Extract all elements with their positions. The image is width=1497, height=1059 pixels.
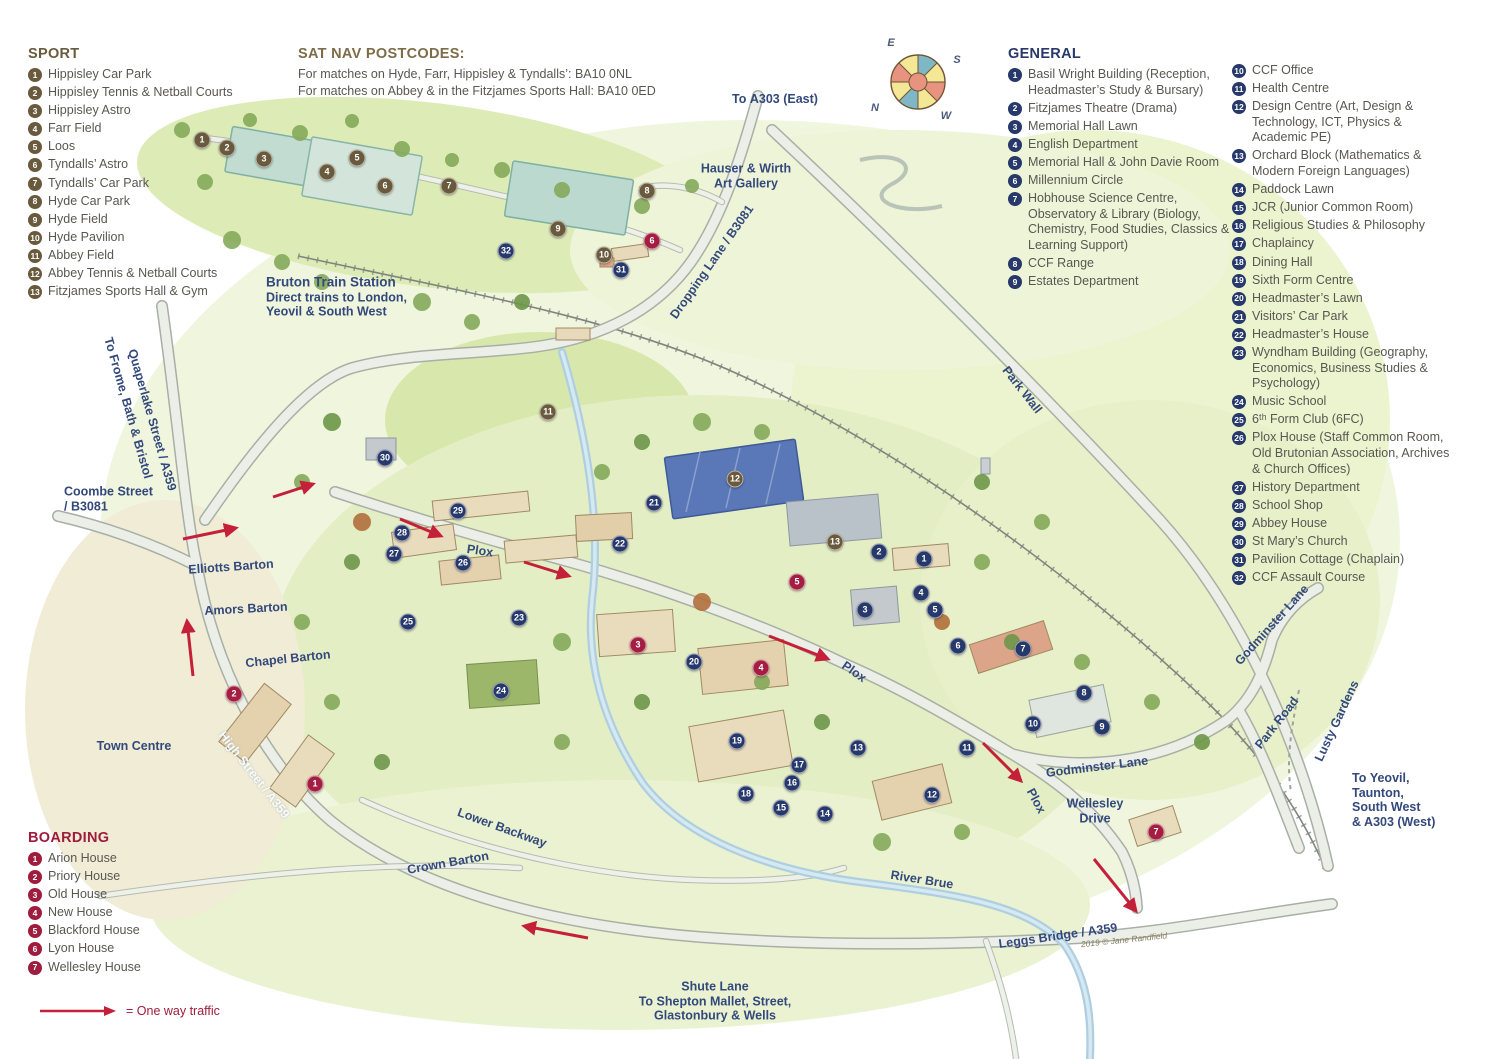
map-marker-general-5: 5: [927, 602, 944, 619]
legend-boarding-item-label: Lyon House: [48, 941, 114, 957]
legend-sport-item-2: 2Hippisley Tennis & Netball Courts: [28, 85, 268, 101]
legend-sport-item-9: 9Hyde Field: [28, 212, 268, 228]
legend-sport-number-badge: 5: [28, 140, 42, 154]
legend-boarding-item-label: New House: [48, 905, 113, 921]
legend-general-number-badge: 7: [1008, 192, 1022, 206]
legend-general-item-label: Pavilion Cottage (Chaplain): [1252, 552, 1404, 568]
legend-general-item-label: Paddock Lawn: [1252, 182, 1334, 198]
legend-sport-item-label: Hyde Pavilion: [48, 230, 124, 246]
legend-general-item-label: Estates Department: [1028, 274, 1138, 290]
map-marker-sport-5: 5: [349, 150, 366, 167]
legend-boarding-title: BOARDING: [28, 830, 228, 846]
legend-sport-item-label: Hyde Field: [48, 212, 108, 228]
map-marker-general-21: 21: [646, 495, 663, 512]
legend-general-number-badge: 5: [1008, 156, 1022, 170]
legend-general-item-25: 256ᵗʰ Form Club (6FC): [1232, 412, 1450, 428]
legend-general-item-5: 5Memorial Hall & John Davie Room: [1008, 155, 1230, 171]
campus-map-page: SPORT 1Hippisley Car Park2Hippisley Tenn…: [0, 0, 1497, 1059]
legend-boarding-item-label: Wellesley House: [48, 960, 141, 976]
map-marker-boarding-2: 2: [226, 686, 243, 703]
legend-sport-item-label: Abbey Field: [48, 248, 114, 264]
map-marker-general-19: 19: [729, 733, 746, 750]
legend-boarding-item-1: 1Arion House: [28, 851, 228, 867]
map-marker-general-4: 4: [913, 585, 930, 602]
map-marker-boarding-7: 7: [1148, 824, 1165, 841]
legend-boarding-number-badge: 1: [28, 852, 42, 866]
legend-sport-items: 1Hippisley Car Park2Hippisley Tennis & N…: [28, 67, 268, 300]
legend-sport-number-badge: 7: [28, 177, 42, 191]
map-marker-sport-7: 7: [441, 178, 458, 195]
legend-general-number-badge: 10: [1232, 64, 1246, 78]
legend-general-number-badge: 21: [1232, 310, 1246, 324]
legend-general-item-20: 20Headmaster’s Lawn: [1232, 291, 1450, 307]
legend-general-number-badge: 16: [1232, 219, 1246, 233]
map-marker-sport-6: 6: [377, 178, 394, 195]
legend-general-item-21: 21Visitors’ Car Park: [1232, 309, 1450, 325]
legend-sport-item-13: 13Fitzjames Sports Hall & Gym: [28, 284, 268, 300]
map-marker-general-8: 8: [1076, 685, 1093, 702]
legend-sport-number-badge: 9: [28, 213, 42, 227]
legend-general-item-label: Headmaster’s House: [1252, 327, 1369, 343]
map-marker-sport-8: 8: [639, 183, 656, 200]
legend-general-item-label: Religious Studies & Philosophy: [1252, 218, 1425, 234]
map-marker-general-15: 15: [773, 800, 790, 817]
legend-general-item-label: Sixth Form Centre: [1252, 273, 1353, 289]
legend-general-item-label: JCR (Junior Common Room): [1252, 200, 1413, 216]
legend-boarding-item-7: 7Wellesley House: [28, 960, 228, 976]
legend-general-item-18: 18Dining Hall: [1232, 255, 1450, 271]
map-marker-general-14: 14: [817, 806, 834, 823]
satnav-line: For matches on Hyde, Farr, Hippisley & T…: [298, 66, 688, 83]
legend-general-number-badge: 1: [1008, 68, 1022, 82]
legend-general-number-badge: 14: [1232, 183, 1246, 197]
legend-general-item-15: 15JCR (Junior Common Room): [1232, 200, 1450, 216]
legend-sport-item-6: 6Tyndalls’ Astro: [28, 157, 268, 173]
satnav-line: For matches on Abbey & in the Fitzjames …: [298, 83, 688, 100]
one-way-arrow: [524, 926, 588, 938]
legend-general-item-label: Design Centre (Art, Design & Technology,…: [1252, 99, 1450, 146]
legend-general-number-badge: 11: [1232, 82, 1246, 96]
legend-sport-item-label: Tyndalls’ Car Park: [48, 176, 149, 192]
legend-sport-item-12: 12Abbey Tennis & Netball Courts: [28, 266, 268, 282]
legend-general-number-badge: 20: [1232, 292, 1246, 306]
legend-sport-number-badge: 4: [28, 122, 42, 136]
legend-general-item-label: Headmaster’s Lawn: [1252, 291, 1363, 307]
legend-general-number-badge: 2: [1008, 102, 1022, 116]
legend-sport-number-badge: 2: [28, 86, 42, 100]
legend-general-item-4: 4English Department: [1008, 137, 1230, 153]
legend-boarding-item-5: 5Blackford House: [28, 923, 228, 939]
map-marker-sport-4: 4: [319, 164, 336, 181]
legend-general-item-label: Basil Wright Building (Reception, Headma…: [1028, 67, 1230, 98]
legend-satnav: SAT NAV POSTCODES: For matches on Hyde, …: [298, 46, 688, 99]
legend-general-number-badge: 25: [1232, 413, 1246, 427]
legend-sport-number-badge: 13: [28, 285, 42, 299]
map-marker-boarding-6: 6: [644, 233, 661, 250]
one-way-arrow: [273, 484, 313, 497]
map-marker-general-12: 12: [924, 787, 941, 804]
legend-general-item-3: 3Memorial Hall Lawn: [1008, 119, 1230, 135]
legend-general-number-badge: 22: [1232, 328, 1246, 342]
map-marker-general-1: 1: [916, 551, 933, 568]
map-marker-general-18: 18: [738, 786, 755, 803]
legend-sport-number-badge: 8: [28, 195, 42, 209]
legend-sport: SPORT 1Hippisley Car Park2Hippisley Tenn…: [28, 46, 268, 302]
legend-general-number-badge: 30: [1232, 535, 1246, 549]
legend-sport-item-8: 8Hyde Car Park: [28, 194, 268, 210]
legend-sport-item-label: Tyndalls’ Astro: [48, 157, 128, 173]
legend-general-item-label: Wyndham Building (Geography, Economics, …: [1252, 345, 1450, 392]
map-marker-general-13: 13: [850, 740, 867, 757]
map-marker-general-27: 27: [386, 546, 403, 563]
legend-general-item-10: 10CCF Office: [1232, 63, 1450, 79]
legend-general-number-badge: 13: [1232, 149, 1246, 163]
map-marker-general-10: 10: [1025, 716, 1042, 733]
legend-sport-item-4: 4Farr Field: [28, 121, 268, 137]
legend-sport-item-label: Abbey Tennis & Netball Courts: [48, 266, 217, 282]
legend-general-number-badge: 32: [1232, 571, 1246, 585]
legend-satnav-title: SAT NAV POSTCODES:: [298, 46, 688, 62]
legend-boarding-item-label: Blackford House: [48, 923, 140, 939]
legend-sport-item-10: 10Hyde Pavilion: [28, 230, 268, 246]
map-marker-general-25: 25: [400, 614, 417, 631]
one-way-arrow: [183, 528, 236, 539]
map-marker-general-26: 26: [455, 555, 472, 572]
legend-sport-item-label: Fitzjames Sports Hall & Gym: [48, 284, 208, 300]
map-marker-general-31: 31: [613, 262, 630, 279]
map-marker-general-30: 30: [377, 450, 394, 467]
legend-general-item-label: Memorial Hall Lawn: [1028, 119, 1138, 135]
legend-general-item-label: Health Centre: [1252, 81, 1329, 97]
legend-boarding-item-label: Arion House: [48, 851, 117, 867]
legend-general-number-badge: 12: [1232, 100, 1246, 114]
map-marker-general-24: 24: [493, 683, 510, 700]
legend-general-item-29: 29Abbey House: [1232, 516, 1450, 532]
map-marker-sport-10: 10: [596, 247, 613, 264]
legend-general-number-badge: 24: [1232, 395, 1246, 409]
map-marker-general-29: 29: [450, 503, 467, 520]
one-way-arrow: [983, 743, 1021, 781]
legend-sport-item-3: 3Hippisley Astro: [28, 103, 268, 119]
map-marker-sport-13: 13: [827, 534, 844, 551]
legend-general-item-label: St Mary’s Church: [1252, 534, 1348, 550]
legend-general-col2: 10CCF Office11Health Centre12Design Cent…: [1232, 63, 1450, 588]
legend-boarding-item-3: 3Old House: [28, 887, 228, 903]
legend-boarding-number-badge: 3: [28, 888, 42, 902]
legend-sport-item-label: Hippisley Tennis & Netball Courts: [48, 85, 233, 101]
legend-general-item-label: CCF Range: [1028, 256, 1094, 272]
legend-general-col1: GENERAL 1Basil Wright Building (Receptio…: [1008, 46, 1230, 292]
legend-boarding-item-label: Old House: [48, 887, 107, 903]
map-marker-general-22: 22: [612, 536, 629, 553]
legend-sport-number-badge: 10: [28, 231, 42, 245]
legend-general-number-badge: 15: [1232, 201, 1246, 215]
legend-general-item-label: Chaplaincy: [1252, 236, 1314, 252]
legend-general-item-label: History Department: [1252, 480, 1360, 496]
legend-sport-item-label: Farr Field: [48, 121, 101, 137]
legend-general-item-13: 13Orchard Block (Mathematics & Modern Fo…: [1232, 148, 1450, 179]
legend-general-item-16: 16Religious Studies & Philosophy: [1232, 218, 1450, 234]
map-marker-boarding-4: 4: [753, 660, 770, 677]
legend-general-item-label: Hobhouse Science Centre, Observatory & L…: [1028, 191, 1230, 253]
legend-boarding: BOARDING 1Arion House2Priory House3Old H…: [28, 830, 228, 978]
legend-general-item-23: 23Wyndham Building (Geography, Economics…: [1232, 345, 1450, 392]
legend-sport-item-5: 5Loos: [28, 139, 268, 155]
map-marker-boarding-1: 1: [307, 776, 324, 793]
one-way-traffic-label: = One way traffic: [126, 1004, 220, 1018]
legend-sport-title: SPORT: [28, 46, 268, 62]
map-marker-general-20: 20: [686, 654, 703, 671]
legend-general-number-badge: 29: [1232, 517, 1246, 531]
legend-general-item-24: 24Music School: [1232, 394, 1450, 410]
legend-general-item-label: Orchard Block (Mathematics & Modern Fore…: [1252, 148, 1450, 179]
legend-general-item-label: English Department: [1028, 137, 1138, 153]
legend-general-item-28: 28School Shop: [1232, 498, 1450, 514]
legend-general-item-7: 7Hobhouse Science Centre, Observatory & …: [1008, 191, 1230, 253]
legend-boarding-item-2: 2Priory House: [28, 869, 228, 885]
legend-general-item-9: 9Estates Department: [1008, 274, 1230, 290]
map-marker-general-2: 2: [871, 544, 888, 561]
legend-general-item-label: Abbey House: [1252, 516, 1327, 532]
map-marker-boarding-3: 3: [630, 637, 647, 654]
legend-general-number-badge: 18: [1232, 256, 1246, 270]
legend-boarding-number-badge: 4: [28, 906, 42, 920]
map-marker-boarding-5: 5: [789, 574, 806, 591]
legend-general-item-12: 12Design Centre (Art, Design & Technolog…: [1232, 99, 1450, 146]
legend-general-item-label: CCF Office: [1252, 63, 1314, 79]
map-marker-general-6: 6: [950, 638, 967, 655]
legend-general-number-badge: 28: [1232, 499, 1246, 513]
legend-sport-item-label: Hyde Car Park: [48, 194, 130, 210]
legend-general-item-31: 31Pavilion Cottage (Chaplain): [1232, 552, 1450, 568]
legend-general-item-1: 1Basil Wright Building (Reception, Headm…: [1008, 67, 1230, 98]
legend-sport-item-11: 11Abbey Field: [28, 248, 268, 264]
map-marker-general-28: 28: [394, 525, 411, 542]
legend-sport-number-badge: 1: [28, 68, 42, 82]
legend-general-number-badge: 17: [1232, 237, 1246, 251]
legend-general-item-22: 22Headmaster’s House: [1232, 327, 1450, 343]
legend-general-item-19: 19Sixth Form Centre: [1232, 273, 1450, 289]
legend-general-item-label: Plox House (Staff Common Room, Old Bruto…: [1252, 430, 1450, 477]
legend-general-item-8: 8CCF Range: [1008, 256, 1230, 272]
legend-sport-item-1: 1Hippisley Car Park: [28, 67, 268, 83]
legend-general-item-label: Millennium Circle: [1028, 173, 1123, 189]
legend-general-item-label: CCF Assault Course: [1252, 570, 1365, 586]
map-marker-sport-9: 9: [550, 221, 567, 238]
legend-satnav-lines: For matches on Hyde, Farr, Hippisley & T…: [298, 66, 688, 99]
legend-general-item-label: 6ᵗʰ Form Club (6FC): [1252, 412, 1364, 428]
legend-boarding-item-6: 6Lyon House: [28, 941, 228, 957]
legend-boarding-number-badge: 5: [28, 924, 42, 938]
map-marker-sport-11: 11: [540, 404, 557, 421]
legend-general-number-badge: 31: [1232, 553, 1246, 567]
legend-general-number-badge: 8: [1008, 257, 1022, 271]
one-way-arrow: [524, 562, 569, 576]
legend-general-item-11: 11Health Centre: [1232, 81, 1450, 97]
legend-sport-number-badge: 11: [28, 249, 42, 263]
legend-general-item-label: Visitors’ Car Park: [1252, 309, 1348, 325]
legend-sport-number-badge: 6: [28, 158, 42, 172]
legend-general-number-badge: 27: [1232, 481, 1246, 495]
legend-general-item-14: 14Paddock Lawn: [1232, 182, 1450, 198]
legend-general-number-badge: 26: [1232, 431, 1246, 445]
legend-general-item-label: Fitzjames Theatre (Drama): [1028, 101, 1177, 117]
legend-sport-item-7: 7Tyndalls’ Car Park: [28, 176, 268, 192]
legend-general-item-26: 26Plox House (Staff Common Room, Old Bru…: [1232, 430, 1450, 477]
legend-general-item-30: 30St Mary’s Church: [1232, 534, 1450, 550]
map-marker-sport-12: 12: [727, 471, 744, 488]
legend-general-title: GENERAL: [1008, 46, 1230, 62]
legend-general-item-2: 2Fitzjames Theatre (Drama): [1008, 101, 1230, 117]
legend-general-item-label: Memorial Hall & John Davie Room: [1028, 155, 1219, 171]
legend-boarding-item-4: 4New House: [28, 905, 228, 921]
map-marker-general-23: 23: [511, 610, 528, 627]
map-marker-general-16: 16: [784, 775, 801, 792]
legend-sport-item-label: Hippisley Car Park: [48, 67, 152, 83]
one-way-arrow: [1094, 859, 1136, 911]
legend-boarding-item-label: Priory House: [48, 869, 120, 885]
legend-boarding-number-badge: 2: [28, 870, 42, 884]
map-marker-general-11: 11: [959, 740, 976, 757]
one-way-arrow-icon: [38, 1005, 118, 1017]
legend-sport-item-label: Loos: [48, 139, 75, 155]
one-way-traffic-key: = One way traffic: [38, 1004, 220, 1018]
legend-general-item-17: 17Chaplaincy: [1232, 236, 1450, 252]
map-marker-general-9: 9: [1094, 719, 1111, 736]
legend-sport-item-label: Hippisley Astro: [48, 103, 131, 119]
one-way-arrow: [769, 636, 828, 659]
map-marker-general-32: 32: [498, 243, 515, 260]
legend-general-number-badge: 9: [1008, 275, 1022, 289]
legend-general-number-badge: 19: [1232, 274, 1246, 288]
legend-general-item-label: Dining Hall: [1252, 255, 1312, 271]
legend-general-number-badge: 4: [1008, 138, 1022, 152]
map-marker-general-7: 7: [1015, 641, 1032, 658]
legend-general-number-badge: 3: [1008, 120, 1022, 134]
legend-general-number-badge: 6: [1008, 174, 1022, 188]
legend-general-item-6: 6Millennium Circle: [1008, 173, 1230, 189]
legend-general-item-label: School Shop: [1252, 498, 1323, 514]
map-marker-general-17: 17: [791, 757, 808, 774]
legend-general-item-label: Music School: [1252, 394, 1326, 410]
map-marker-general-3: 3: [857, 602, 874, 619]
legend-sport-number-badge: 3: [28, 104, 42, 118]
legend-general-number-badge: 23: [1232, 346, 1246, 360]
one-way-arrow: [187, 621, 193, 676]
legend-general-item-32: 32CCF Assault Course: [1232, 570, 1450, 586]
legend-boarding-number-badge: 6: [28, 942, 42, 956]
legend-general-item-27: 27History Department: [1232, 480, 1450, 496]
legend-sport-number-badge: 12: [28, 267, 42, 281]
legend-boarding-number-badge: 7: [28, 961, 42, 975]
